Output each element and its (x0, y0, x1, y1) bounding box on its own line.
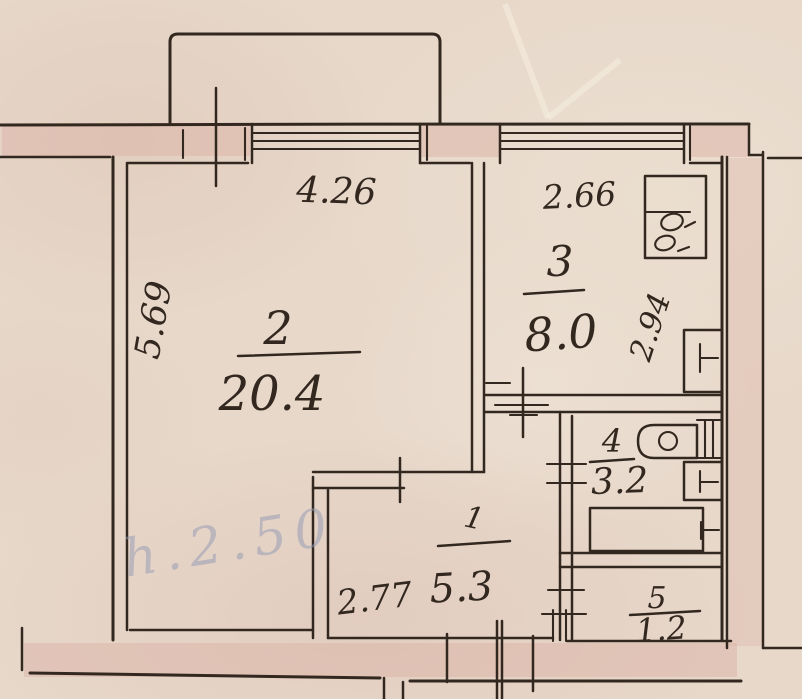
pencil-height-note: h.2.50 (119, 497, 340, 590)
bathtub-outline (590, 508, 703, 551)
room1-area: 5.3 (428, 563, 494, 612)
room4-number: 4 (601, 422, 622, 460)
room1-number: 1 (461, 500, 487, 538)
wall-fill-right (729, 158, 762, 646)
stove-burner (659, 211, 685, 232)
annotations: 4.26 5.69 2 20.4 h.2.50 2.66 3 8.0 2.94 … (119, 170, 700, 650)
toilet-drain (659, 432, 677, 450)
room1-width-dimension: 2.77 (334, 575, 415, 624)
room1-fraction-line (438, 541, 510, 546)
balcony-outline (170, 34, 440, 124)
room3-depth-dimension: 2.94 (622, 289, 678, 367)
room2-width-dimension: 4.26 (295, 170, 378, 214)
toilet-icon (638, 420, 722, 458)
stove-burner-dash (678, 247, 689, 251)
room3-fraction-line (524, 290, 584, 294)
room3-area: 8.0 (523, 304, 600, 363)
washbasin-tap (700, 471, 718, 492)
toilet-bowl (638, 425, 697, 458)
floor-plan-scan: 4.26 5.69 2 20.4 h.2.50 2.66 3 8.0 2.94 … (0, 0, 802, 699)
paper-crease (505, 4, 548, 118)
wall-fill-top-right (690, 126, 749, 157)
room2-depth-dimension: 5.69 (128, 278, 181, 362)
wall-fill-top-middle (420, 126, 500, 157)
room5-area: 1.2 (635, 608, 688, 649)
floor-plan-drawing: 4.26 5.69 2 20.4 h.2.50 2.66 3 8.0 2.94 … (0, 0, 802, 699)
sink-tap (700, 344, 718, 372)
wall-fill-bottom (24, 643, 737, 677)
room2-number: 2 (262, 301, 292, 355)
top-wall-outer-line (0, 124, 749, 125)
washbasin-icon (684, 462, 722, 500)
stove-icon (645, 176, 706, 258)
bathtub-icon (590, 508, 719, 551)
room2-area: 20.4 (218, 366, 326, 422)
kitchen-window (500, 124, 690, 163)
stove-outline (645, 176, 706, 258)
interior-walls (313, 163, 722, 640)
room4-area: 3.2 (590, 460, 649, 503)
balcony (170, 34, 440, 124)
room3-width-dimension: 2.66 (541, 174, 617, 217)
stove-burner (653, 234, 676, 253)
sink-outline (684, 330, 722, 392)
room2-window (245, 124, 427, 163)
room3-number: 3 (547, 237, 574, 286)
kitchen-sink-icon (684, 330, 722, 392)
paper-crease (548, 60, 620, 118)
toilet-tank (697, 420, 722, 458)
stove-burner-dash (685, 222, 695, 227)
wall-fill-top-left (2, 126, 250, 156)
room2-fraction-line (238, 352, 360, 356)
